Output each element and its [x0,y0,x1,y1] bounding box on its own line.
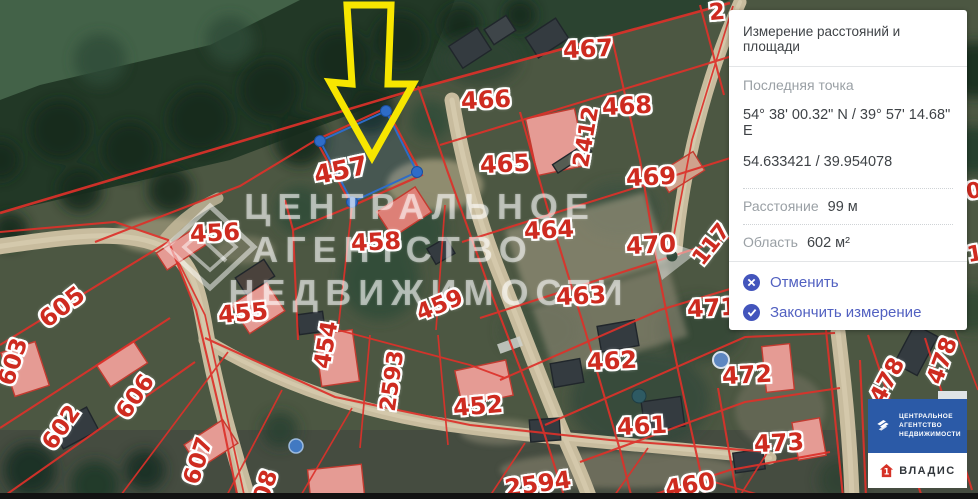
pool [632,389,646,403]
partner-name: ВЛАДИС [899,465,955,477]
agency-logo-block: ЦЕНТРАЛЬНОЕ АГЕНТСТВО НЕДВИЖИМОСТИ [868,399,967,453]
area-label: Область [743,234,798,250]
partner-logo-block: 1 ВЛАДИС [868,453,967,488]
finish-measurement-label: Закончить измерение [770,304,921,321]
last-point-label: Последняя точка [743,77,953,93]
coordinates-dms: 54° 38' 00.32" N / 39° 57' 14.68" E [743,107,953,139]
agency-name-line: АГЕНТСТВО [899,422,961,430]
agency-logo-icon [874,411,894,441]
cancel-button[interactable]: Отменить [743,274,953,291]
area-value: 602 м² [807,235,850,251]
distance-value: 99 м [828,199,858,215]
watermark-text: НЕДВИЖИМОСТИ [229,272,630,314]
finish-measurement-button[interactable]: Закончить измерение [743,304,953,321]
checkmark-icon [743,304,760,321]
cancel-icon [743,274,760,291]
measurement-panel: Измерение расстояний и площади Последняя… [729,10,967,330]
svg-text:1: 1 [884,467,890,477]
measurement-vertex[interactable] [315,136,326,147]
agency-badge: ЦЕНТРАЛЬНОЕ АГЕНТСТВО НЕДВИЖИМОСТИ 1 ВЛА… [868,399,967,488]
watermark-text: ЦЕНТРАЛЬНОЕ [244,186,596,228]
map-screen: ЦЕНТРАЛЬНОЕ АГЕНТСТВО НЕДВИЖИМОСТИ 45745… [0,0,978,499]
agency-name-line: ЦЕНТРАЛЬНОЕ [899,413,961,421]
distance-label: Расстояние [743,198,819,214]
pool [289,439,303,453]
bottom-bar [0,493,978,499]
agency-name-line: НЕДВИЖИМОСТИ [899,431,961,439]
cancel-label: Отменить [770,274,839,291]
panel-title: Измерение расстояний и площади [743,24,953,54]
measurement-vertex[interactable] [381,106,392,117]
pool [713,352,729,368]
watermark-text: АГЕНТСТВО [252,229,534,271]
measurement-vertex[interactable] [412,167,423,178]
coordinates-decimal: 54.633421 / 39.954078 [743,154,953,170]
vladis-house-icon: 1 [879,463,894,478]
